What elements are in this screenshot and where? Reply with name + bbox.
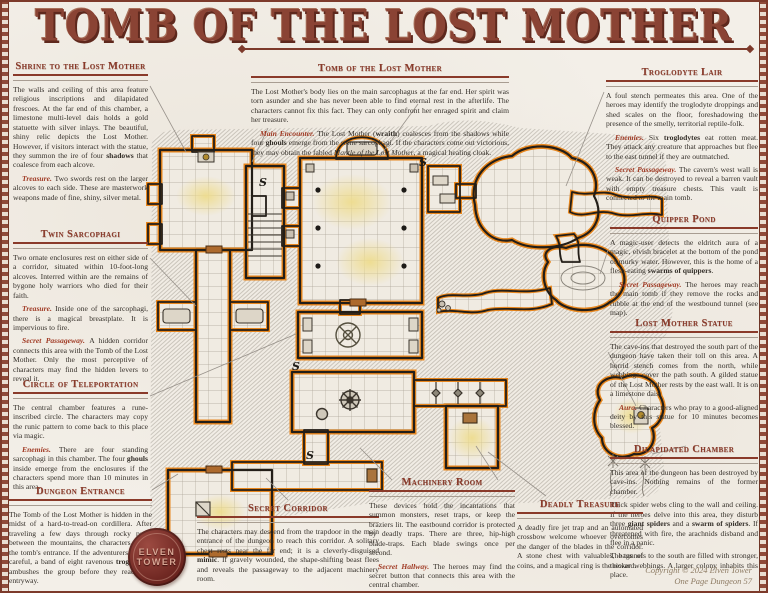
treasure-chest: [463, 413, 477, 423]
sarcophagus: [433, 176, 448, 185]
section-title: Twin Sarcophagi: [13, 229, 148, 241]
section-rule: [197, 516, 379, 523]
section-title: Shrine to the Lost Mother: [13, 61, 148, 73]
copyright-notice: Copyright © 2024 Elven Tower One Page Du…: [532, 565, 752, 588]
standing-sarcophagus: [303, 340, 312, 353]
section-quipper-pond: Quipper PondA magic-user detects the eld…: [610, 214, 758, 321]
brazier: [286, 230, 294, 238]
seal-line2: TOWER: [134, 557, 180, 567]
poster-title: TOMB OF THE LOST MOTHER: [12, 1, 756, 52]
section-circle-of-teleportation: Circle of TeleportationThe central chamb…: [13, 379, 148, 496]
section-title: Secret Corridor: [197, 503, 379, 515]
right-stitched-border: [759, 0, 768, 593]
section-machinery-room: Machinery RoomThese devices hold the inc…: [369, 477, 515, 593]
section-rule: [9, 499, 152, 506]
section-rule: [369, 490, 515, 497]
secret-door-marker: S: [292, 360, 300, 373]
section-body: The characters may descend from the trap…: [197, 527, 379, 583]
standing-sarcophagus: [303, 318, 312, 331]
section-title: Troglodyte Lair: [606, 67, 758, 79]
section-body: The Lost Mother's body lies on the main …: [251, 87, 509, 157]
section-title: Dilapidated Chamber: [610, 444, 758, 456]
section-lost-mother-statue: Lost Mother StatueThe cave-ins that dest…: [610, 318, 758, 435]
section-rule: [13, 74, 148, 81]
section-body: The central chamber features a rune-insc…: [13, 403, 148, 492]
section-title: Dungeon Entrance: [9, 486, 152, 498]
section-body: Two ornate enclosures rest on either sid…: [13, 253, 148, 383]
section-title: Circle of Teleportation: [13, 379, 148, 391]
section-deadly-treasure: Deadly TreasureA deadly fire jet trap an…: [517, 499, 643, 574]
section-shrine: Shrine to the Lost MotherThe walls and c…: [13, 61, 148, 206]
section-rule: [13, 242, 148, 249]
sarcophagus: [163, 309, 190, 323]
copyright-line1: Copyright © 2024 Elven Tower: [532, 565, 752, 576]
secret-door-marker: S: [306, 449, 314, 462]
section-title: Tomb of the Lost Mother: [251, 63, 509, 75]
section-body: A deadly fire jet trap and an automated …: [517, 523, 643, 570]
section-rule: [610, 227, 758, 234]
elven-tower-seal-text: ELVEN TOWER: [133, 533, 181, 581]
brazier: [286, 192, 294, 200]
section-body: A magic-user detects the eldritch aura o…: [610, 238, 758, 317]
standing-sarcophagus: [409, 318, 418, 331]
section-title: Machinery Room: [369, 477, 515, 489]
section-rule: [610, 331, 758, 338]
brazier: [306, 164, 314, 172]
section-title: Lost Mother Statue: [610, 318, 758, 330]
one-page-dungeon-poster: TOMB OF THE LOST MOTHER: [0, 0, 768, 593]
section-twin-sarcophagi: Twin SarcophagiTwo ornate enclosures res…: [13, 229, 148, 387]
gold-statuette: [203, 154, 209, 160]
sarcophagus: [236, 309, 263, 323]
section-secret-corridor: Secret CorridorThe characters may descen…: [197, 503, 379, 588]
section-tomb-of-the-lost-mother: Tomb of the Lost MotherThe Lost Mother's…: [251, 63, 509, 161]
section-title: Deadly Treasure: [517, 499, 643, 511]
seal-line1: ELVEN: [134, 547, 180, 557]
brazier: [410, 164, 418, 172]
section-rule: [606, 80, 758, 87]
section-dungeon-entrance: Dungeon EntranceThe Tomb of the Lost Mot…: [9, 486, 152, 589]
left-stitched-border: [0, 0, 9, 593]
section-title: Quipper Pond: [610, 214, 758, 226]
title-divider-rule: [242, 48, 750, 50]
copyright-line2: One Page Dungeon 57: [532, 576, 752, 587]
section-body: The walls and ceiling of this area featu…: [13, 85, 148, 202]
section-body: The cave-ins that destroyed the south pa…: [610, 342, 758, 431]
section-rule: [517, 512, 643, 519]
section-body: A foul stench permeates this area. One o…: [606, 91, 758, 202]
section-troglodyte-lair: Troglodyte LairA foul stench permeates t…: [606, 67, 758, 207]
sarcophagus: [440, 194, 455, 203]
secret-door-marker: S: [259, 176, 267, 189]
section-rule: [251, 76, 509, 83]
elven-tower-seal: ELVEN TOWER: [128, 528, 186, 586]
section-rule: [13, 392, 148, 399]
section-rule: [610, 457, 758, 464]
standing-sarcophagus: [409, 340, 418, 353]
section-body: These devices hold the incantations that…: [369, 501, 515, 590]
